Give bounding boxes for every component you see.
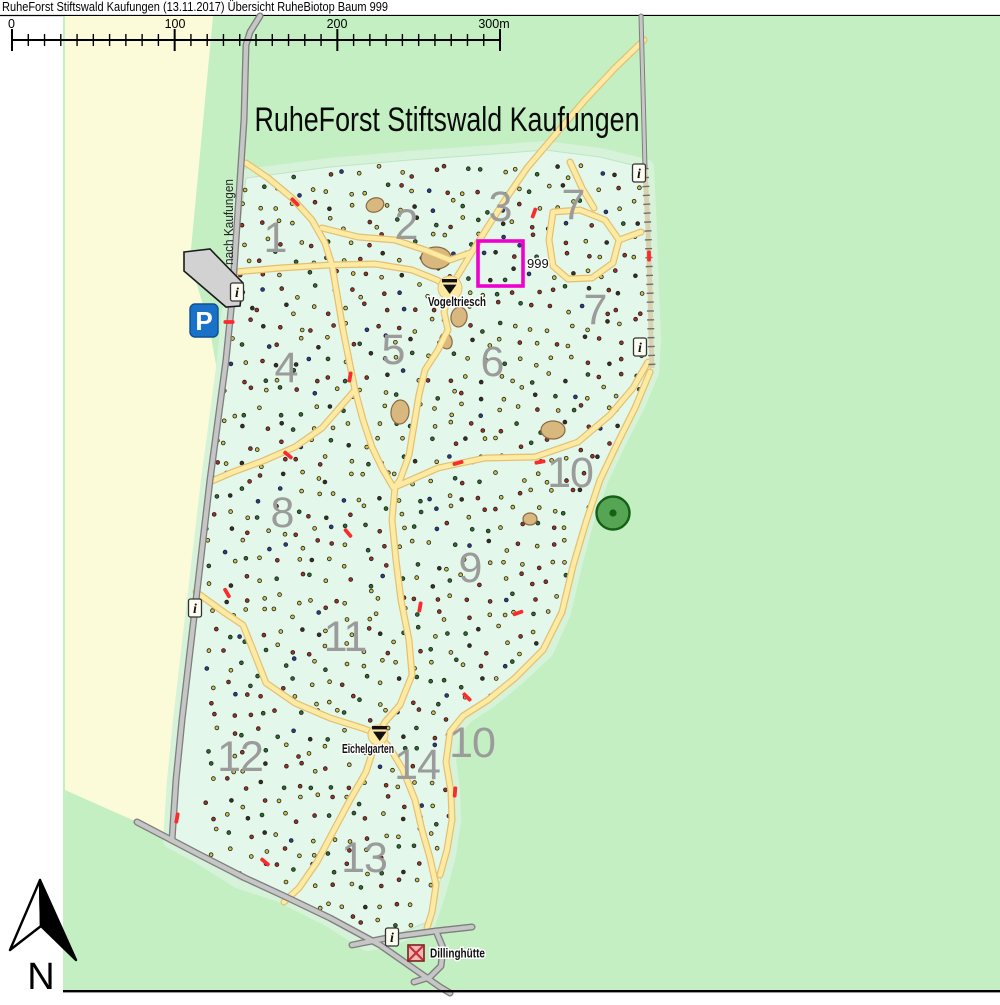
section-label: 14 [394, 741, 440, 789]
section-label: 10 [547, 449, 593, 497]
section-label: 2 [395, 201, 418, 249]
section-label: 6 [481, 338, 504, 386]
map-image: RuheForst Stiftswald Kaufungen (13.11.20… [0, 0, 1000, 1000]
map-title: RuheForst Stiftswald Kaufungen [255, 101, 640, 139]
road-destination-label: nach Kaufungen [221, 179, 236, 265]
section-label: 5 [382, 326, 405, 374]
svg-text:i: i [638, 341, 642, 356]
section-label: 8 [271, 489, 294, 537]
svg-text:i: i [235, 286, 239, 301]
info-icon: i [633, 164, 646, 182]
map-document: RuheForst Stiftswald Kaufungen (13.11.20… [0, 0, 1000, 1000]
highlight-label: 999 [527, 256, 549, 271]
scale-label: 100 [165, 17, 186, 31]
window-title: RuheForst Stiftswald Kaufungen (13.11.20… [2, 0, 388, 14]
section-label: 4 [275, 344, 298, 392]
place-dillinghuette: Dillinghütte [408, 945, 485, 961]
north-label: N [27, 956, 54, 998]
section-label: 11 [324, 613, 367, 661]
biotope-tree-icon [597, 497, 630, 530]
place-label: Eichelgarten [342, 742, 394, 756]
section-label: 3 [489, 183, 512, 231]
clearing [541, 421, 565, 439]
map-canvas: 999 RuheForst Stiftswald Kaufungen 12345… [8, 16, 1000, 998]
scale-label: 200 [327, 17, 348, 31]
section-label: 9 [459, 544, 482, 592]
section-label: 1 [264, 214, 287, 262]
parking-icon-label: P [195, 306, 212, 336]
info-icon: i [386, 928, 399, 946]
red-marker [224, 320, 235, 324]
section-label: 7 [562, 181, 585, 229]
svg-text:i: i [193, 602, 197, 617]
info-icon: i [231, 283, 244, 301]
map-border-bottom [63, 990, 1000, 992]
svg-text:i: i [637, 167, 641, 182]
place-label: Vogeltriesch [428, 295, 486, 309]
red-marker [647, 251, 651, 262]
info-icon: i [189, 599, 202, 617]
svg-text:i: i [390, 931, 394, 946]
info-icon: i [634, 338, 647, 356]
place-label: Dillinghütte [430, 947, 485, 961]
section-label: 12 [217, 733, 263, 781]
section-label: 7 [584, 286, 607, 334]
section-label: 10 [449, 719, 495, 767]
scale-label: 0 [8, 17, 15, 31]
parking-icon: P [190, 304, 218, 337]
clearing [523, 513, 537, 525]
hut-icon [408, 945, 424, 961]
scale-label: 300m [478, 17, 509, 31]
section-label: 13 [341, 834, 387, 882]
